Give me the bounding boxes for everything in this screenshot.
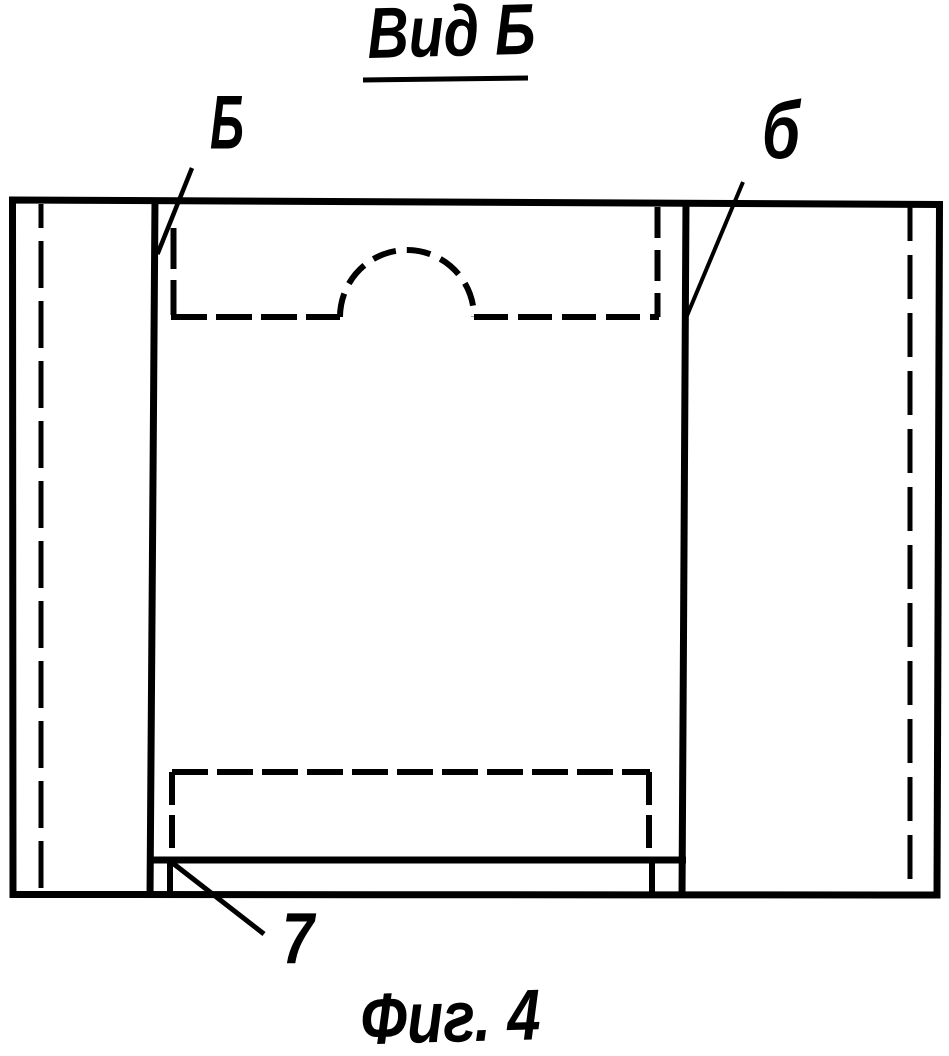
svg-text:Фиг. 4: Фиг. 4 xyxy=(359,975,541,1056)
svg-text:Б: Б xyxy=(210,81,244,166)
svg-text:7: 7 xyxy=(282,899,316,979)
svg-text:Вид Б: Вид Б xyxy=(366,0,536,74)
svg-text:б: б xyxy=(762,85,802,176)
